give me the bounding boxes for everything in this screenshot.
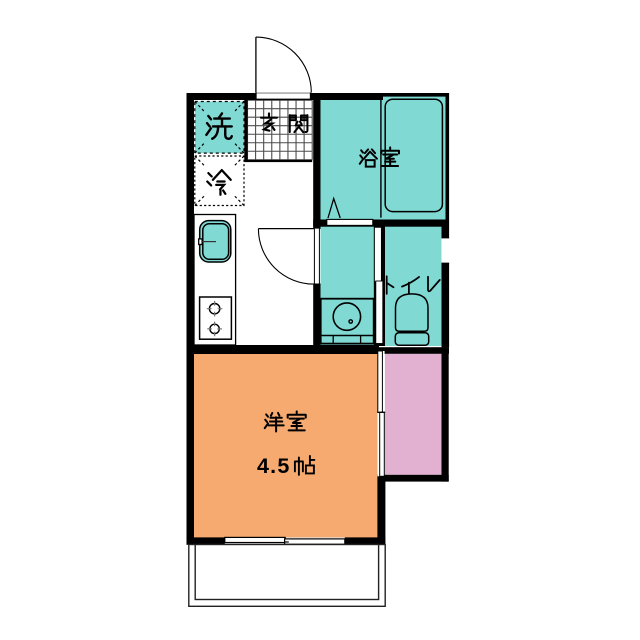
svg-text:4.5: 4.5: [257, 454, 291, 478]
